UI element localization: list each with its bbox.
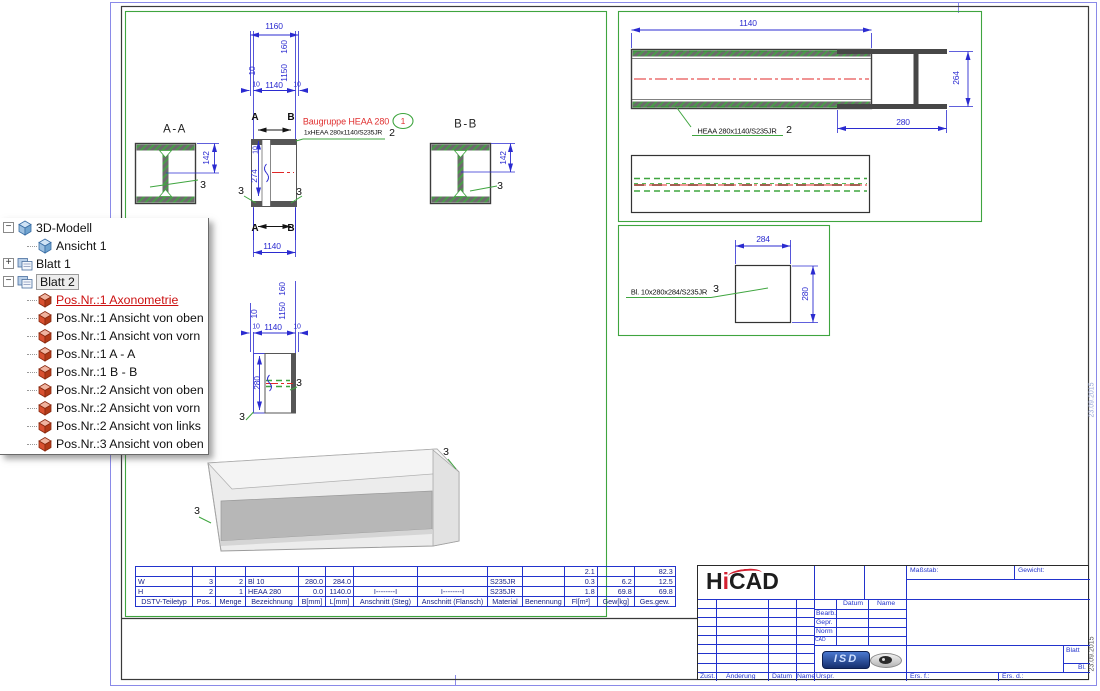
parts-table-cell (418, 567, 488, 577)
hicad-logo: HiCAD (706, 568, 779, 595)
annotation-text: 1150 (278, 302, 287, 319)
parts-table-cell: 82.3 (634, 567, 675, 577)
parts-table-cell: S235JR (488, 587, 523, 597)
isd-eye-icon (870, 653, 902, 668)
parts-table-cell: Anschnitt (Steg) (354, 597, 418, 607)
tree-item-label[interactable]: Pos.Nr.:2 Ansicht von links (56, 419, 201, 433)
urspr-label: Urspr. (816, 674, 834, 681)
annotation-text: 10 (252, 82, 259, 89)
parts-table-cell: B[mm] (299, 597, 326, 607)
tree-item-label[interactable]: Pos.Nr.:1 Axonometrie (56, 293, 178, 307)
annotation-text: 3 (296, 378, 302, 389)
parts-table-cell: 1 (216, 587, 246, 597)
annotation-text: Baugruppe HEAA 280 (303, 118, 389, 127)
annotation-text: 3 (497, 181, 503, 192)
tree-item-label[interactable]: Blatt 1 (36, 257, 71, 271)
parts-table-cell: 284.0 (326, 577, 354, 587)
annotation-text: 10 (250, 309, 259, 318)
parts-table-cell: S235JR (488, 577, 523, 587)
hicad-logo-i: i (723, 568, 729, 594)
bearb-label: Bearb. (816, 611, 836, 618)
axonometric-view (199, 449, 459, 551)
annotation-text: 3 (443, 447, 449, 458)
datum2-label: Datum (772, 674, 792, 681)
parts-table-cell: 0.3 (564, 577, 597, 587)
tree-item-pos-nr-1-ansicht-von-vorn[interactable]: Pos.Nr.:1 Ansicht von vorn (0, 327, 208, 345)
tree-branch-line (27, 444, 37, 445)
parts-table-cell: I--------I (418, 587, 488, 597)
annotation-text: 10 (293, 82, 300, 89)
annotation-text: B (287, 113, 294, 123)
parts-table-cell: 1140.0 (326, 587, 354, 597)
parts-table-cell (246, 567, 299, 577)
beam-detail-views (632, 30, 974, 213)
tree-item-ansicht-1[interactable]: Ansicht 1 (0, 237, 208, 255)
parts-table-cell: Material (488, 597, 523, 607)
annotation-text: 1160 (265, 22, 282, 31)
tree-item-pos-nr-2-ansicht-von-links[interactable]: Pos.Nr.:2 Ansicht von links (0, 417, 208, 435)
tree-item-label[interactable]: Pos.Nr.:3 Ansicht von oben (56, 437, 204, 451)
annotation-text: HEAA 280x1140/S235JR (697, 127, 776, 135)
tree-item-pos-nr-2-ansicht-von-vorn[interactable]: Pos.Nr.:2 Ansicht von vorn (0, 399, 208, 417)
tree-item-blatt-1[interactable]: +Blatt 1 (0, 255, 208, 273)
pos2-view (243, 281, 306, 420)
cube-red-icon (37, 436, 53, 455)
tree-branch-line (27, 408, 37, 409)
tree-item-label[interactable]: Pos.Nr.:1 Ansicht von oben (56, 311, 204, 325)
annotation-text: A-A (163, 124, 187, 136)
annotation-text: 1140 (739, 19, 756, 28)
parts-table-cell: 0.0 (299, 587, 326, 597)
bl-label: Bl. (1078, 665, 1086, 672)
parts-table-cell: L[mm] (326, 597, 354, 607)
annotation-text: 3 (194, 506, 200, 517)
tree-expander-minus-icon[interactable]: − (3, 222, 14, 233)
parts-table-cell: HEAA 280 (246, 587, 299, 597)
tree-item-label[interactable]: Pos.Nr.:2 Ansicht von vorn (56, 401, 200, 415)
annotation-text: 264 (952, 71, 961, 85)
parts-table-cell: 3 (193, 577, 216, 587)
annotation-text: 23.09.2015 (1089, 382, 1096, 417)
parts-table-cell: Anschnitt (Flansch) (418, 597, 488, 607)
plate-detail-view (626, 240, 818, 323)
tree-item-pos-nr-2-ansicht-von-oben[interactable]: Pos.Nr.:2 Ansicht von oben (0, 381, 208, 399)
parts-table-cell: 69.8 (597, 587, 634, 597)
parts-table-header-row: DSTV-TeiletypPos.MengeBezeichnungB[mm]L[… (136, 597, 676, 607)
isd-logo: ISD (822, 651, 870, 669)
parts-table-cell: Menge (216, 597, 246, 607)
tree-branch-line (27, 336, 37, 337)
tree-expander-plus-icon[interactable]: + (3, 258, 14, 269)
annotation-text: 2 (786, 125, 792, 136)
parts-table-cell: DSTV-Teiletyp (136, 597, 193, 607)
tree-item-blatt-2[interactable]: −Blatt 2 (0, 273, 208, 291)
parts-table-cell (354, 577, 418, 587)
annotation-text: 1 (401, 117, 406, 126)
parts-table-cell (216, 567, 246, 577)
parts-table-cell (136, 567, 193, 577)
annotation-text: 280 (253, 376, 262, 390)
parts-table-cell (354, 567, 418, 577)
gewicht-label: Gewicht: (1018, 568, 1044, 575)
isd-logo-text: ISD (834, 653, 858, 665)
annotation-text: 1140 (264, 323, 281, 332)
parts-table-cell (523, 587, 565, 597)
tree-branch-line (27, 318, 37, 319)
parts-table-cell (597, 567, 634, 577)
tree-branch-line (27, 246, 37, 247)
zust-label: Zust. (700, 674, 715, 681)
hicad-logo-h: H (706, 568, 723, 594)
parts-table-cell: Bezeichnung (246, 597, 299, 607)
annotation-text: 1140 (263, 242, 280, 251)
parts-table-cell: 2 (193, 587, 216, 597)
annotation-text: 284 (756, 235, 770, 244)
annotation-text: 274 (250, 169, 259, 183)
annotation-text: 142 (499, 151, 508, 165)
tree-branch-line (27, 390, 37, 391)
annotation-text: A (251, 113, 258, 123)
parts-table-cell: 2.1 (564, 567, 597, 577)
tree-item-3d-modell[interactable]: −3D-Modell (0, 219, 208, 237)
parts-table-cell: Fl[m²] (564, 597, 597, 607)
tree-item-pos-nr-3-ansicht-von-oben[interactable]: Pos.Nr.:3 Ansicht von oben (0, 435, 208, 453)
annotation-text: 142 (202, 151, 211, 165)
norm-label: Norm (816, 629, 833, 636)
parts-table-cell (523, 577, 565, 587)
annotation-text: 1xHEAA 280x1140/S235JR (304, 131, 382, 138)
tree-item-label[interactable]: Ansicht 1 (56, 239, 107, 253)
parts-table-cell (326, 567, 354, 577)
parts-table-cell: H (136, 587, 193, 597)
tree-item-pos-nr-1-a-a[interactable]: Pos.Nr.:1 A - A (0, 345, 208, 363)
parts-table-row: H21HEAA 2800.01140.0I--------II--------I… (136, 587, 676, 597)
annotation-text: 10 (293, 324, 300, 331)
ers-d-label: Ers. d.: (1002, 674, 1024, 681)
parts-table-cell: Benennung (523, 597, 565, 607)
parts-table-cell: 280.0 (299, 577, 326, 587)
parts-table-cell (299, 567, 326, 577)
annotation-text: 2 (389, 128, 395, 139)
parts-table-cell: Pos. (193, 597, 216, 607)
model-tree-panel: −3D-ModellAnsicht 1+Blatt 1−Blatt 2Pos.N… (0, 218, 209, 455)
tree-item-pos-nr-1-axonometrie[interactable]: Pos.Nr.:1 Axonometrie (0, 291, 208, 309)
parts-table-cell: 69.8 (634, 587, 675, 597)
annotation-text: A (251, 224, 258, 234)
parts-table-cell: 2 (216, 577, 246, 587)
tree-item-label[interactable]: Blatt 2 (36, 274, 79, 290)
tree-item-pos-nr-1-ansicht-von-oben[interactable]: Pos.Nr.:1 Ansicht von oben (0, 309, 208, 327)
annotation-text: 280 (896, 118, 910, 127)
tree-item-label[interactable]: Pos.Nr.:2 Ansicht von oben (56, 383, 204, 397)
annotation-text: Bl. 10x280x284/S235JR (631, 288, 707, 296)
gepr-label: Gepr. (816, 620, 833, 627)
tree-item-label[interactable]: Pos.Nr.:1 A - A (56, 347, 135, 361)
annotation-text: 3 (239, 412, 245, 423)
title-block: HiCAD Maßstab: Gewicht: Datum Name Bearb… (697, 565, 1089, 680)
annotation-text: 10 (252, 324, 259, 331)
tree-item-label[interactable]: 3D-Modell (36, 221, 92, 235)
annotation-text: 10 (253, 146, 260, 154)
parts-table-cell: 12.5 (634, 577, 675, 587)
ers-f-label: Ers. f.: (910, 674, 930, 681)
parts-table-cell: 1.8 (564, 587, 597, 597)
annotation-text: 3 (296, 187, 302, 198)
hicad-drawing-workspace: .fblue{fill:none;stroke:#8a8ae8;stroke-w… (0, 0, 1100, 691)
annotation-text: 3 (238, 186, 244, 197)
pos1-view (243, 31, 413, 257)
cad-label: CAD (815, 638, 826, 643)
datum-label: Datum (843, 601, 863, 608)
parts-table-cell (193, 567, 216, 577)
annotation-text: 280 (801, 287, 810, 301)
annotation-text: B (287, 224, 294, 234)
annotation-text: 1140 (265, 81, 282, 90)
tree-item-label[interactable]: Pos.Nr.:1 Ansicht von vorn (56, 329, 200, 343)
tree-item-label[interactable]: Pos.Nr.:1 B - B (56, 365, 137, 379)
tree-branch-line (27, 426, 37, 427)
parts-table-cell (488, 567, 523, 577)
masstab-label: Maßstab: (910, 568, 938, 575)
annotation-text: 3 (200, 180, 206, 191)
tree-expander-minus-icon[interactable]: − (3, 276, 14, 287)
parts-table-cell: Gew[kg] (597, 597, 634, 607)
parts-table-cell: 6.2 (597, 577, 634, 587)
parts-table-row: 2.182.3 (136, 567, 676, 577)
aenderung-label: Änderung (726, 674, 755, 681)
parts-table-cell (418, 577, 488, 587)
parts-table-cell (523, 567, 565, 577)
tree-item-pos-nr-1-b-b[interactable]: Pos.Nr.:1 B - B (0, 363, 208, 381)
tree-branch-line (27, 300, 37, 301)
tree-branch-line (27, 354, 37, 355)
annotation-text: 10 (248, 66, 257, 75)
name-label: Name (877, 601, 895, 608)
annotation-text: 3 (713, 284, 719, 295)
tree-branch-line (27, 372, 37, 373)
name2-label: Name (797, 674, 815, 681)
parts-table-cell: I--------I (354, 587, 418, 597)
annotation-text: 23.09.2015 (1089, 636, 1096, 671)
parts-table: 2.182.3W32Bl 10280.0284.0S235JR0.36.212.… (135, 566, 676, 607)
annotation-text: 160 (278, 282, 287, 296)
parts-table-row: W32Bl 10280.0284.0S235JR0.36.212.5 (136, 577, 676, 587)
parts-table-cell: W (136, 577, 193, 587)
parts-table-cell: Ges.gew. (634, 597, 675, 607)
blatt-label: Blatt (1066, 648, 1080, 655)
annotation-text: 160 (280, 40, 289, 54)
parts-table-cell: Bl 10 (246, 577, 299, 587)
annotation-text: B-B (454, 119, 478, 131)
